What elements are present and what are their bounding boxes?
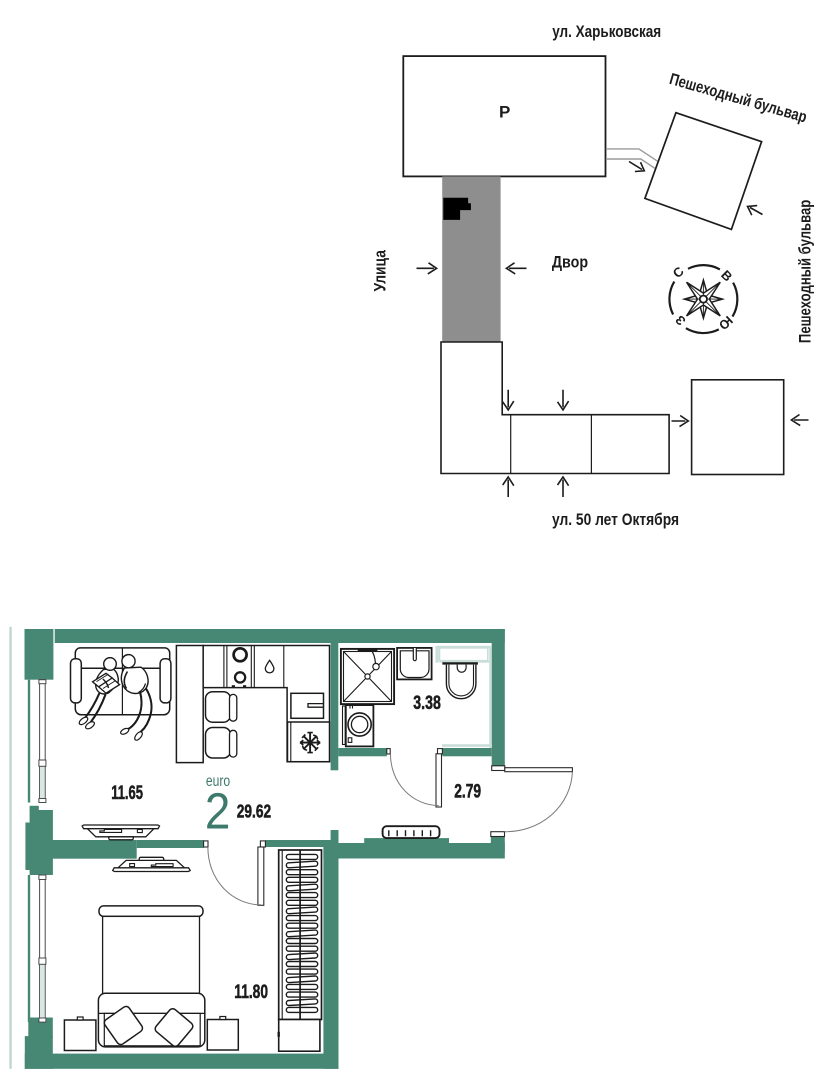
svg-text:Р: Р <box>499 102 510 121</box>
svg-text:Улица: Улица <box>372 249 390 291</box>
svg-text:11.65: 11.65 <box>111 782 143 804</box>
svg-text:Двор: Двор <box>552 254 588 272</box>
svg-text:29.62: 29.62 <box>237 802 271 822</box>
svg-text:11.80: 11.80 <box>234 981 268 1003</box>
svg-text:Пешеходный бульвар: Пешеходный бульвар <box>797 200 815 343</box>
svg-text:В: В <box>718 267 735 284</box>
svg-text:ул. Харьковская: ул. Харьковская <box>552 23 661 41</box>
svg-text:С: С <box>670 263 688 281</box>
svg-text:3.38: 3.38 <box>413 692 441 714</box>
svg-text:2: 2 <box>205 783 231 840</box>
svg-text:2.79: 2.79 <box>454 781 481 803</box>
svg-text:ул. 50 лет Октября: ул. 50 лет Октября <box>552 511 679 529</box>
svg-text:З: З <box>672 312 689 328</box>
